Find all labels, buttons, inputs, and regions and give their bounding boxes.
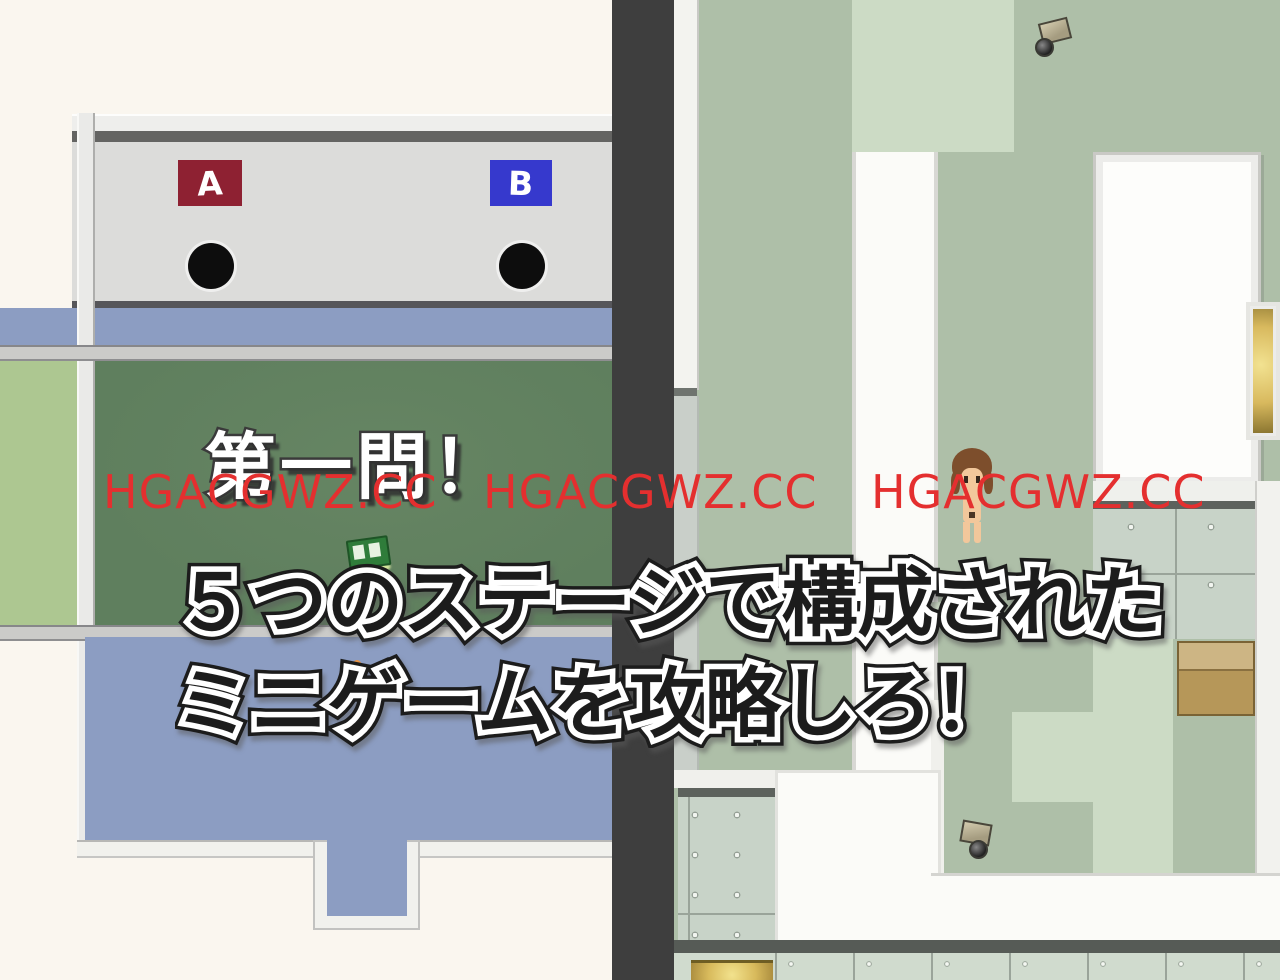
answer-sign-b-label: B bbox=[508, 163, 535, 203]
bottom-wall-line bbox=[674, 940, 1280, 953]
concrete-wall-bottom-left bbox=[678, 797, 775, 940]
white-room-top-right bbox=[1093, 152, 1261, 487]
quiz-stand-dark-bar bbox=[72, 131, 612, 142]
bottom-left-roof-band bbox=[674, 770, 785, 788]
light-green-column bbox=[1093, 639, 1173, 873]
answer-sign-a: A bbox=[178, 160, 242, 206]
white-floor-bottom-right bbox=[931, 873, 1280, 946]
corridor-floor bbox=[327, 840, 407, 916]
watermark-text: HGACGWZ.CC bbox=[103, 465, 438, 519]
cardboard-box-icon bbox=[1177, 641, 1255, 716]
gold-table bbox=[1246, 302, 1280, 440]
wall-strip-seam bbox=[674, 388, 697, 396]
security-camera-icon bbox=[1032, 16, 1072, 64]
supply-box-icon bbox=[691, 960, 773, 980]
concrete-wall-edge-bl bbox=[678, 788, 775, 797]
watermark-text: HGACGWZ.CC bbox=[871, 465, 1206, 519]
answer-sign-a-label: A bbox=[196, 163, 224, 203]
watermark-text: HGACGWZ.CC bbox=[483, 465, 818, 519]
security-camera-icon bbox=[953, 818, 993, 866]
right-wall-strip bbox=[1255, 481, 1280, 890]
light-green-extension bbox=[1012, 712, 1093, 802]
side-wall-green bbox=[0, 357, 78, 625]
game-viewport[interactable]: A B 第一問！ bbox=[0, 0, 1280, 980]
quiz-stand-base-line bbox=[72, 301, 612, 308]
white-floor-bottom bbox=[775, 770, 941, 943]
answer-button-a[interactable] bbox=[188, 243, 234, 289]
wall-rail-top bbox=[0, 345, 612, 361]
answer-button-b[interactable] bbox=[499, 243, 545, 289]
answer-sign-b: B bbox=[490, 160, 552, 206]
light-green-area-top bbox=[852, 0, 1014, 152]
left-wall-strip bbox=[674, 0, 699, 390]
